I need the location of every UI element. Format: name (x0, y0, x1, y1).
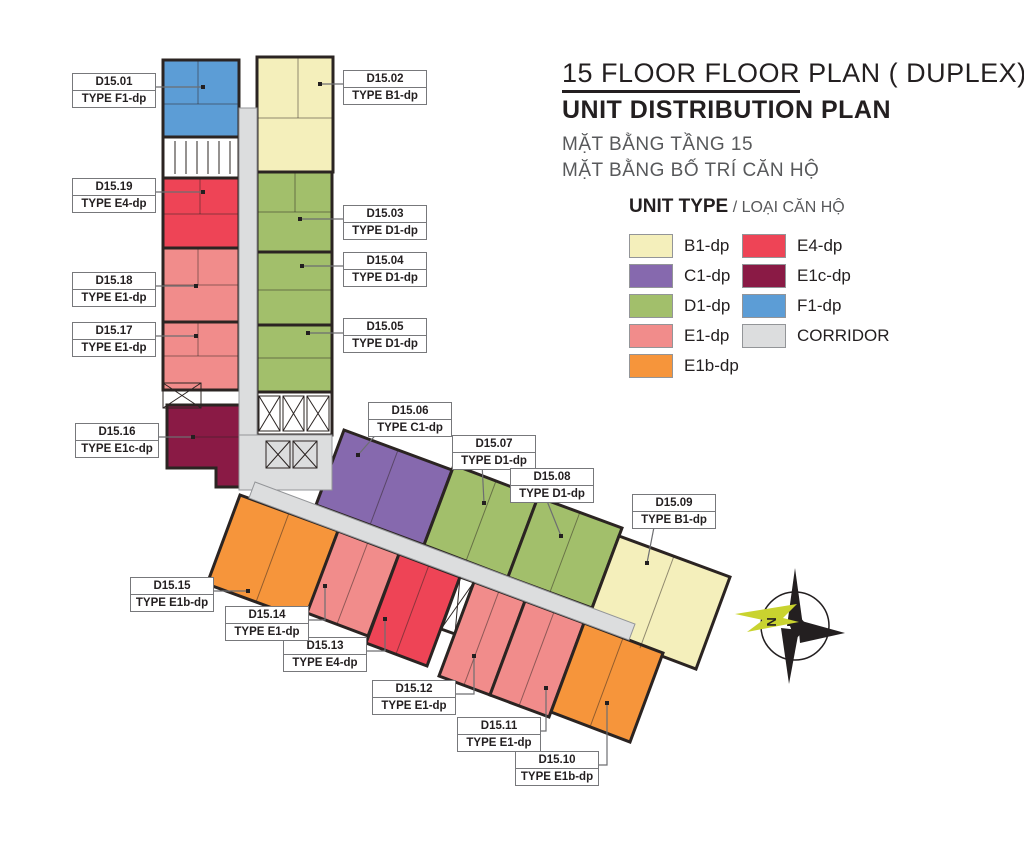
unit-tag-d15-09: D15.09TYPE B1-dp (632, 494, 716, 529)
unit-tag-d15-02: D15.02TYPE B1-dp (343, 70, 427, 105)
unit-tag-d15-18: D15.18TYPE E1-dp (72, 272, 156, 307)
unit-shape-d15-01 (163, 60, 239, 137)
legend-column-1: B1-dp C1-dp D1-dp E1-dp E1b-dp (629, 234, 739, 384)
legend-item-corridor: CORRIDOR (742, 324, 890, 348)
stairwell-block (163, 137, 239, 178)
unit-shape-d15-19 (163, 178, 239, 248)
title-underlined-part: 15 FLOOR FLOOR (562, 58, 800, 93)
unit-tag-d15-11: D15.11TYPE E1-dp (457, 717, 541, 752)
legend-label-d1: D1-dp (684, 296, 730, 316)
legend-swatch-d1 (629, 294, 673, 318)
legend-item-f1: F1-dp (742, 294, 890, 318)
legend-item-d1: D1-dp (629, 294, 739, 318)
legend-swatch-e1c (742, 264, 786, 288)
unit-tag-d15-05: D15.05TYPE D1-dp (343, 318, 427, 353)
legend-item-e4: E4-dp (742, 234, 890, 258)
unit-shape-d15-02 (257, 57, 333, 172)
legend-swatch-f1 (742, 294, 786, 318)
unit-tag-d15-14: D15.14TYPE E1-dp (225, 606, 309, 641)
legend-swatch-corridor (742, 324, 786, 348)
legend-label-e4: E4-dp (797, 236, 842, 256)
compass-icon: N (735, 568, 845, 684)
legend-label-e1b: E1b-dp (684, 356, 739, 376)
legend-swatch-e1 (629, 324, 673, 348)
legend-swatch-e4 (742, 234, 786, 258)
unit-shape-d15-16 (167, 405, 240, 487)
legend-item-e1b: E1b-dp (629, 354, 739, 378)
unit-tag-d15-03: D15.03TYPE D1-dp (343, 205, 427, 240)
unit-tag-d15-01: D15.01TYPE F1-dp (72, 73, 156, 108)
corridor-vertical (239, 108, 257, 490)
legend-label-c1: C1-dp (684, 266, 730, 286)
unit-tag-d15-10: D15.10TYPE E1b-dp (515, 751, 599, 786)
legend-item-c1: C1-dp (629, 264, 739, 288)
legend-title-vn: / LOẠI CĂN HỘ (733, 199, 845, 216)
floor-plan-page: N 15 FLOOR FLOOR PLAN ( DUPLEX) UNIT DIS… (0, 0, 1024, 862)
unit-tag-d15-06: D15.06TYPE C1-dp (368, 402, 452, 437)
unit-type-legend: UNIT TYPE / LOẠI CĂN HỘ B1-dp C1-dp D1-d… (629, 196, 845, 234)
page-subtitle-vn-2: MẶT BẰNG BỐ TRÍ CĂN HỘ (562, 160, 1024, 182)
legend-label-b1: B1-dp (684, 236, 729, 256)
legend-label-e1: E1-dp (684, 326, 729, 346)
legend-item-e1c: E1c-dp (742, 264, 890, 288)
legend-item-e1: E1-dp (629, 324, 739, 348)
legend-item-b1: B1-dp (629, 234, 739, 258)
title-block: 15 FLOOR FLOOR PLAN ( DUPLEX) UNIT DISTR… (562, 58, 1024, 182)
unit-tag-d15-12: D15.12TYPE E1-dp (372, 680, 456, 715)
unit-tag-d15-13: D15.13TYPE E4-dp (283, 637, 367, 672)
page-subtitle-en: UNIT DISTRIBUTION PLAN (562, 96, 1024, 125)
unit-tag-d15-17: D15.17TYPE E1-dp (72, 322, 156, 357)
page-title: 15 FLOOR FLOOR PLAN ( DUPLEX) (562, 58, 1024, 89)
unit-tag-d15-08: D15.08TYPE D1-dp (510, 468, 594, 503)
legend-swatch-b1 (629, 234, 673, 258)
elevator-bank-block (257, 392, 332, 435)
legend-swatch-c1 (629, 264, 673, 288)
unit-tag-d15-19: D15.19TYPE E4-dp (72, 178, 156, 213)
title-rest-part: PLAN ( DUPLEX) (800, 58, 1024, 88)
unit-tag-d15-04: D15.04TYPE D1-dp (343, 252, 427, 287)
legend-label-f1: F1-dp (797, 296, 841, 316)
compass-north-letter: N (764, 617, 779, 626)
unit-tag-d15-16: D15.16TYPE E1c-dp (75, 423, 159, 458)
page-subtitle-vn-1: MẶT BẰNG TẦNG 15 (562, 134, 1024, 156)
legend-column-2: E4-dp E1c-dp F1-dp CORRIDOR (742, 234, 890, 354)
unit-shape-d15-04 (257, 252, 332, 325)
unit-tag-d15-07: D15.07TYPE D1-dp (452, 435, 536, 470)
legend-label-corridor: CORRIDOR (797, 326, 890, 346)
legend-title-en: UNIT TYPE (629, 196, 728, 217)
legend-title: UNIT TYPE / LOẠI CĂN HỘ (629, 196, 845, 218)
unit-tag-d15-15: D15.15TYPE E1b-dp (130, 577, 214, 612)
legend-swatch-e1b (629, 354, 673, 378)
legend-label-e1c: E1c-dp (797, 266, 851, 286)
